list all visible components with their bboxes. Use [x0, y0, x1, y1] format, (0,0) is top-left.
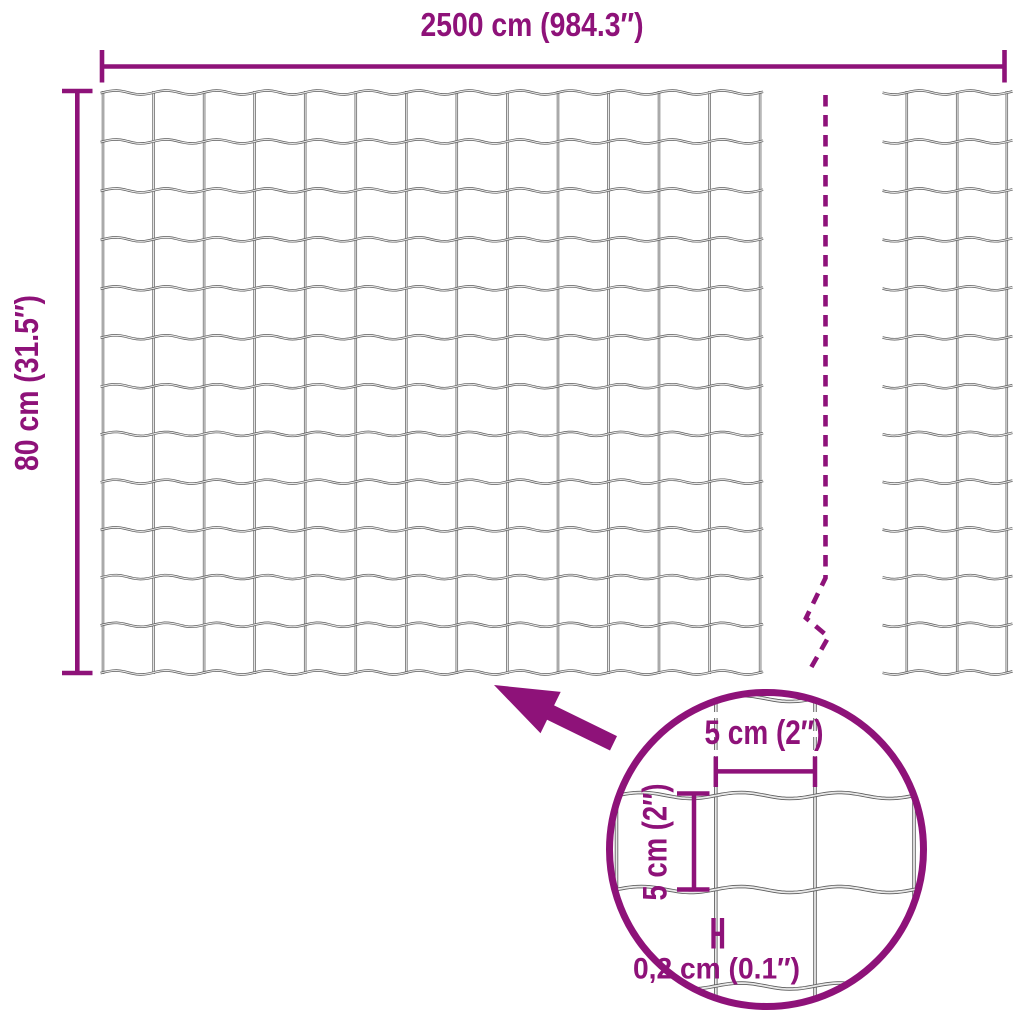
- svg-text:5 cm (2″): 5 cm (2″): [637, 784, 675, 901]
- svg-text:2500 cm (984.3″): 2500 cm (984.3″): [421, 7, 644, 44]
- svg-text:0,2 cm (0.1″): 0,2 cm (0.1″): [633, 953, 800, 986]
- svg-text:5 cm (2″): 5 cm (2″): [705, 714, 824, 752]
- svg-text:80 cm (31.5″): 80 cm (31.5″): [9, 295, 46, 471]
